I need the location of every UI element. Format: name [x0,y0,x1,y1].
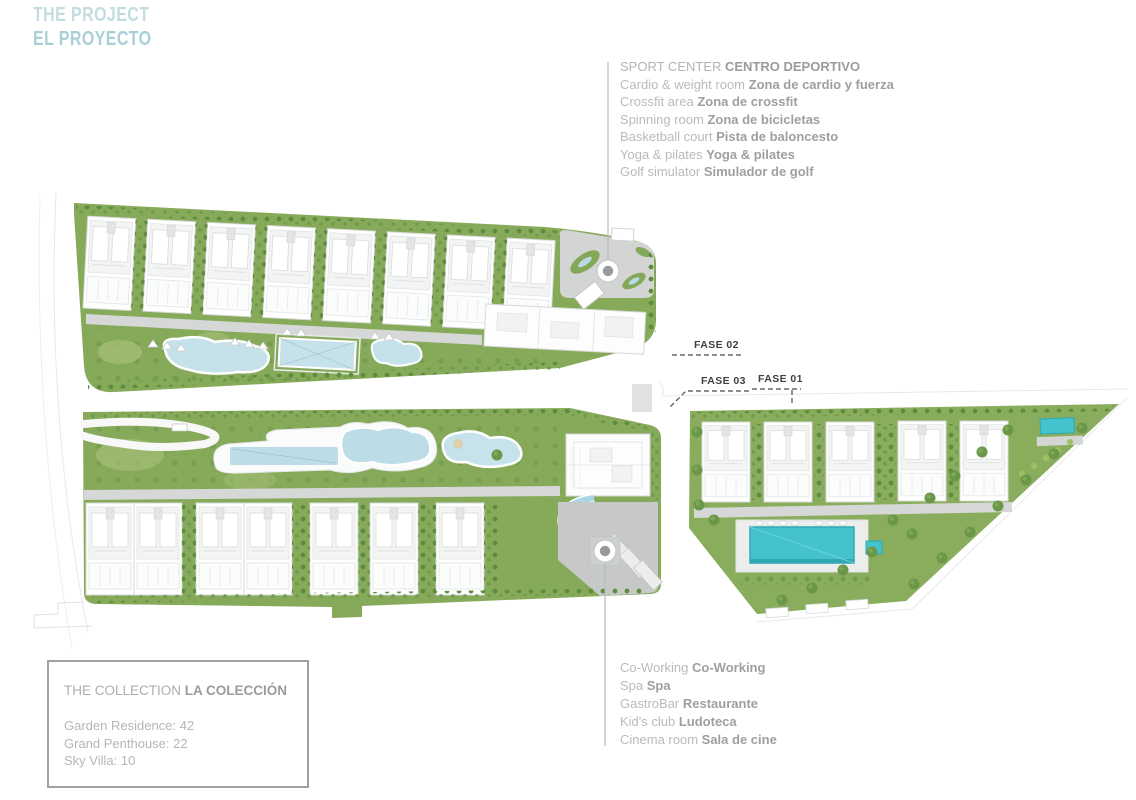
project-masterplan-page: THE PROJECT EL PROYECTO SPORT CENTER CEN… [0,0,1136,800]
right-buildings-row [702,421,1008,502]
fase-03-label: FASE 03 [701,375,746,387]
fase-02-label: FASE 02 [694,339,739,351]
legend-item: Cinema room Sala de cine [620,731,777,749]
upper-parcel [74,203,656,392]
connector-road [632,384,652,412]
legend-item: Spa Spa [620,677,777,695]
collection-item: Sky Villa: 10 [64,752,194,770]
legend-item: Kid's club Ludoteca [620,713,777,731]
club-marker [594,540,616,562]
lower-parcel [83,408,662,618]
legend-item: Basketball court Pista de baloncesto [620,128,894,146]
sport-center-marker [597,260,619,282]
lower-buildings-row [86,503,498,595]
page-title-en: THE PROJECT [33,3,152,27]
collection-title: THE COLLECTION LA COLECCIÓN [64,683,287,698]
legend-item: Spinning room Zona de bicicletas [620,111,894,129]
page-title: THE PROJECT EL PROYECTO [33,3,152,51]
fase-01-label: FASE 01 [758,373,803,385]
legend-item: GastroBar Restaurante [620,695,777,713]
amenities-legend: Co-Working Co-Working Spa Spa GastroBar … [620,659,777,749]
legend-item: Co-Working Co-Working [620,659,777,677]
collection-item: Grand Penthouse: 22 [64,735,194,753]
main-pool [736,520,882,572]
collection-items: Garden Residence: 42 Grand Penthouse: 22… [64,717,194,770]
sport-center-building [484,304,646,354]
fase-03-line [669,391,749,408]
clubhouse-building [566,434,650,496]
right-parcel [689,404,1119,618]
legend-item: Golf simulator Simulador de golf [620,163,894,181]
collection-box: THE COLLECTION LA COLECCIÓN Garden Resid… [47,660,309,788]
collection-item: Garden Residence: 42 [64,717,194,735]
legend-item: Yoga & pilates Yoga & pilates [620,146,894,164]
sport-center-title: SPORT CENTER CENTRO DEPORTIVO [620,58,894,76]
legend-item: Crossfit area Zona de crossfit [620,93,894,111]
page-title-es: EL PROYECTO [33,27,152,51]
sport-center-legend: SPORT CENTER CENTRO DEPORTIVO Cardio & w… [620,58,894,181]
legend-item: Cardio & weight room Zona de cardio y fu… [620,76,894,94]
